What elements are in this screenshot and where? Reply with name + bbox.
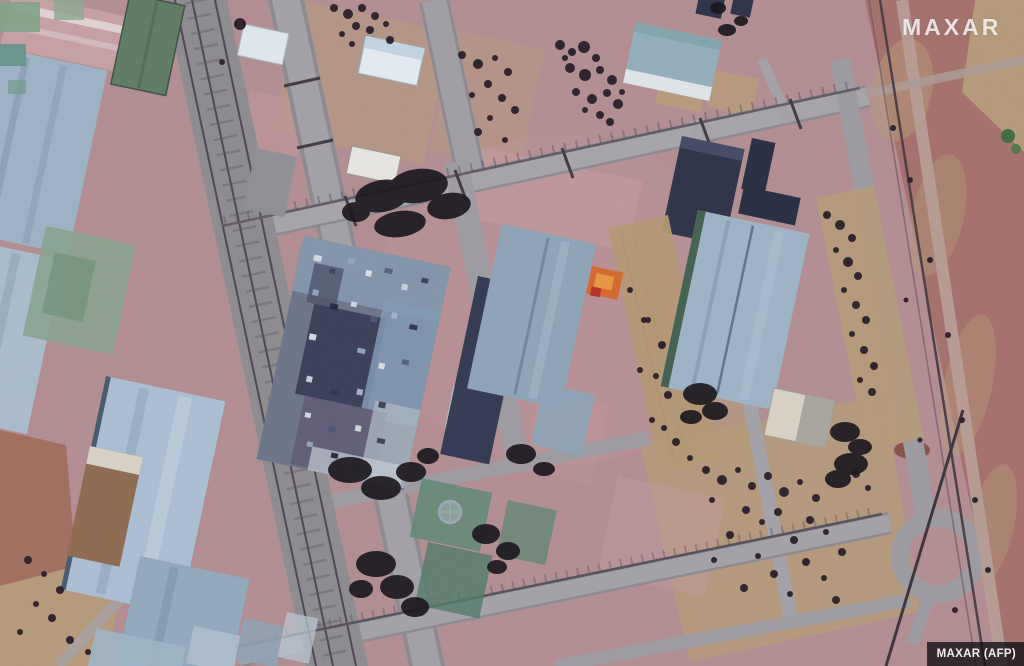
satellite-image: MAXAR MAXAR (AFP) bbox=[0, 0, 1024, 666]
photo-grain bbox=[0, 0, 1024, 666]
maxar-watermark: MAXAR bbox=[902, 14, 1001, 41]
credit-text: MAXAR (AFP) bbox=[937, 648, 1016, 660]
credit-bar: MAXAR (AFP) bbox=[927, 642, 1024, 666]
satellite-scene bbox=[0, 0, 1024, 666]
